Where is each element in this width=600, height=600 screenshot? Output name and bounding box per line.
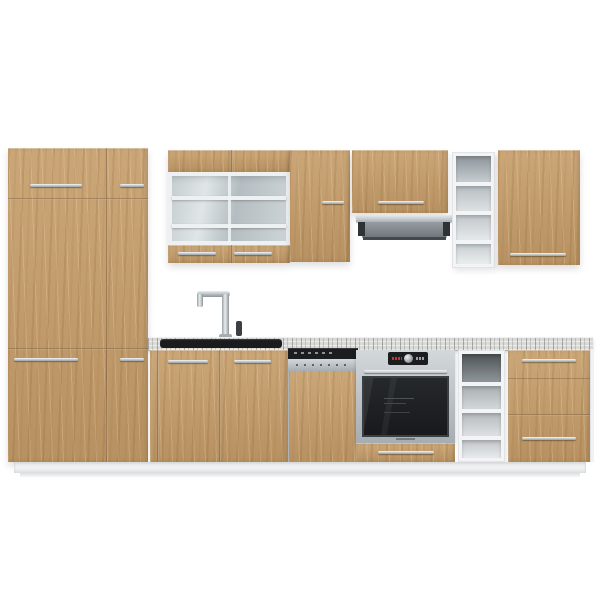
floor-shadow <box>20 473 580 478</box>
range-hood-icon <box>356 215 452 242</box>
oven-door-glass <box>362 376 449 437</box>
glass-wall-cabinet <box>168 150 290 263</box>
oven-control-panel <box>388 352 428 365</box>
base-open-shelf <box>458 350 505 462</box>
oven-knob <box>404 354 413 363</box>
door-gap <box>106 148 108 462</box>
glass-doors <box>168 172 290 245</box>
faucet-riser <box>222 294 229 338</box>
door-handle <box>30 184 82 187</box>
door-handle <box>14 358 78 361</box>
hood-end-cap <box>443 222 450 236</box>
shelf-compartment <box>462 354 501 382</box>
hood-front-strip <box>356 215 452 222</box>
door-gap <box>157 350 159 462</box>
door-handle <box>510 253 566 256</box>
door-gap <box>8 198 148 200</box>
door-gap <box>219 350 221 462</box>
glass-door-gap <box>228 172 231 245</box>
end-panel <box>590 350 594 462</box>
oven-brand-mark <box>396 438 415 440</box>
dishwasher-furniture-panel <box>288 371 358 462</box>
cabinet-top-band <box>168 150 290 172</box>
plinth <box>14 462 586 473</box>
hood-end-cap <box>358 222 365 236</box>
hood-underside <box>363 237 446 240</box>
door-handle <box>234 252 272 255</box>
faucet-sprayer <box>236 321 242 336</box>
wall-open-shelf <box>452 152 495 268</box>
door-handle <box>168 360 208 363</box>
oven <box>356 350 455 443</box>
drawer-unit <box>508 350 590 462</box>
kitchen-product-image <box>0 0 600 600</box>
drawer-handle <box>378 451 434 454</box>
shelf-compartment <box>462 440 501 458</box>
drawer-handle <box>522 359 576 362</box>
shelf-compartment <box>456 156 491 182</box>
door-gap <box>8 348 148 350</box>
hood-cabinet <box>352 150 448 213</box>
dishwasher <box>288 348 358 462</box>
oven-drawer <box>356 443 455 462</box>
door-handle <box>178 252 216 255</box>
oven-display <box>392 357 402 360</box>
shelf-compartment <box>456 244 491 264</box>
door-handle <box>120 358 144 361</box>
door-handle <box>378 201 424 204</box>
dishwasher-buttons <box>296 364 350 366</box>
wall-cabinet-left <box>290 150 350 262</box>
sink <box>160 339 282 348</box>
drawer-gap <box>508 378 590 379</box>
door-handle <box>120 184 144 187</box>
shelf-compartment <box>456 186 491 211</box>
shelf-compartment <box>462 413 501 436</box>
tall-cabinet <box>8 148 148 462</box>
dishwasher-display <box>294 352 334 354</box>
hood-canopy <box>358 222 450 238</box>
sink-base-cabinet <box>150 350 288 462</box>
wall-cabinet-right <box>498 150 580 265</box>
oven-handle <box>364 370 447 373</box>
shelf-compartment <box>462 386 501 409</box>
cabinet-bottom-band <box>168 245 290 263</box>
oven-buttons <box>416 357 425 360</box>
door-handle <box>322 201 344 204</box>
faucet-spout <box>197 294 203 307</box>
shelf-compartment <box>456 215 491 240</box>
dishwasher-control-strip <box>288 348 358 359</box>
drawer-handle <box>522 437 576 440</box>
dishwasher-steel-panel <box>288 359 358 371</box>
drawer-gap <box>508 414 590 416</box>
door-handle <box>234 360 271 363</box>
